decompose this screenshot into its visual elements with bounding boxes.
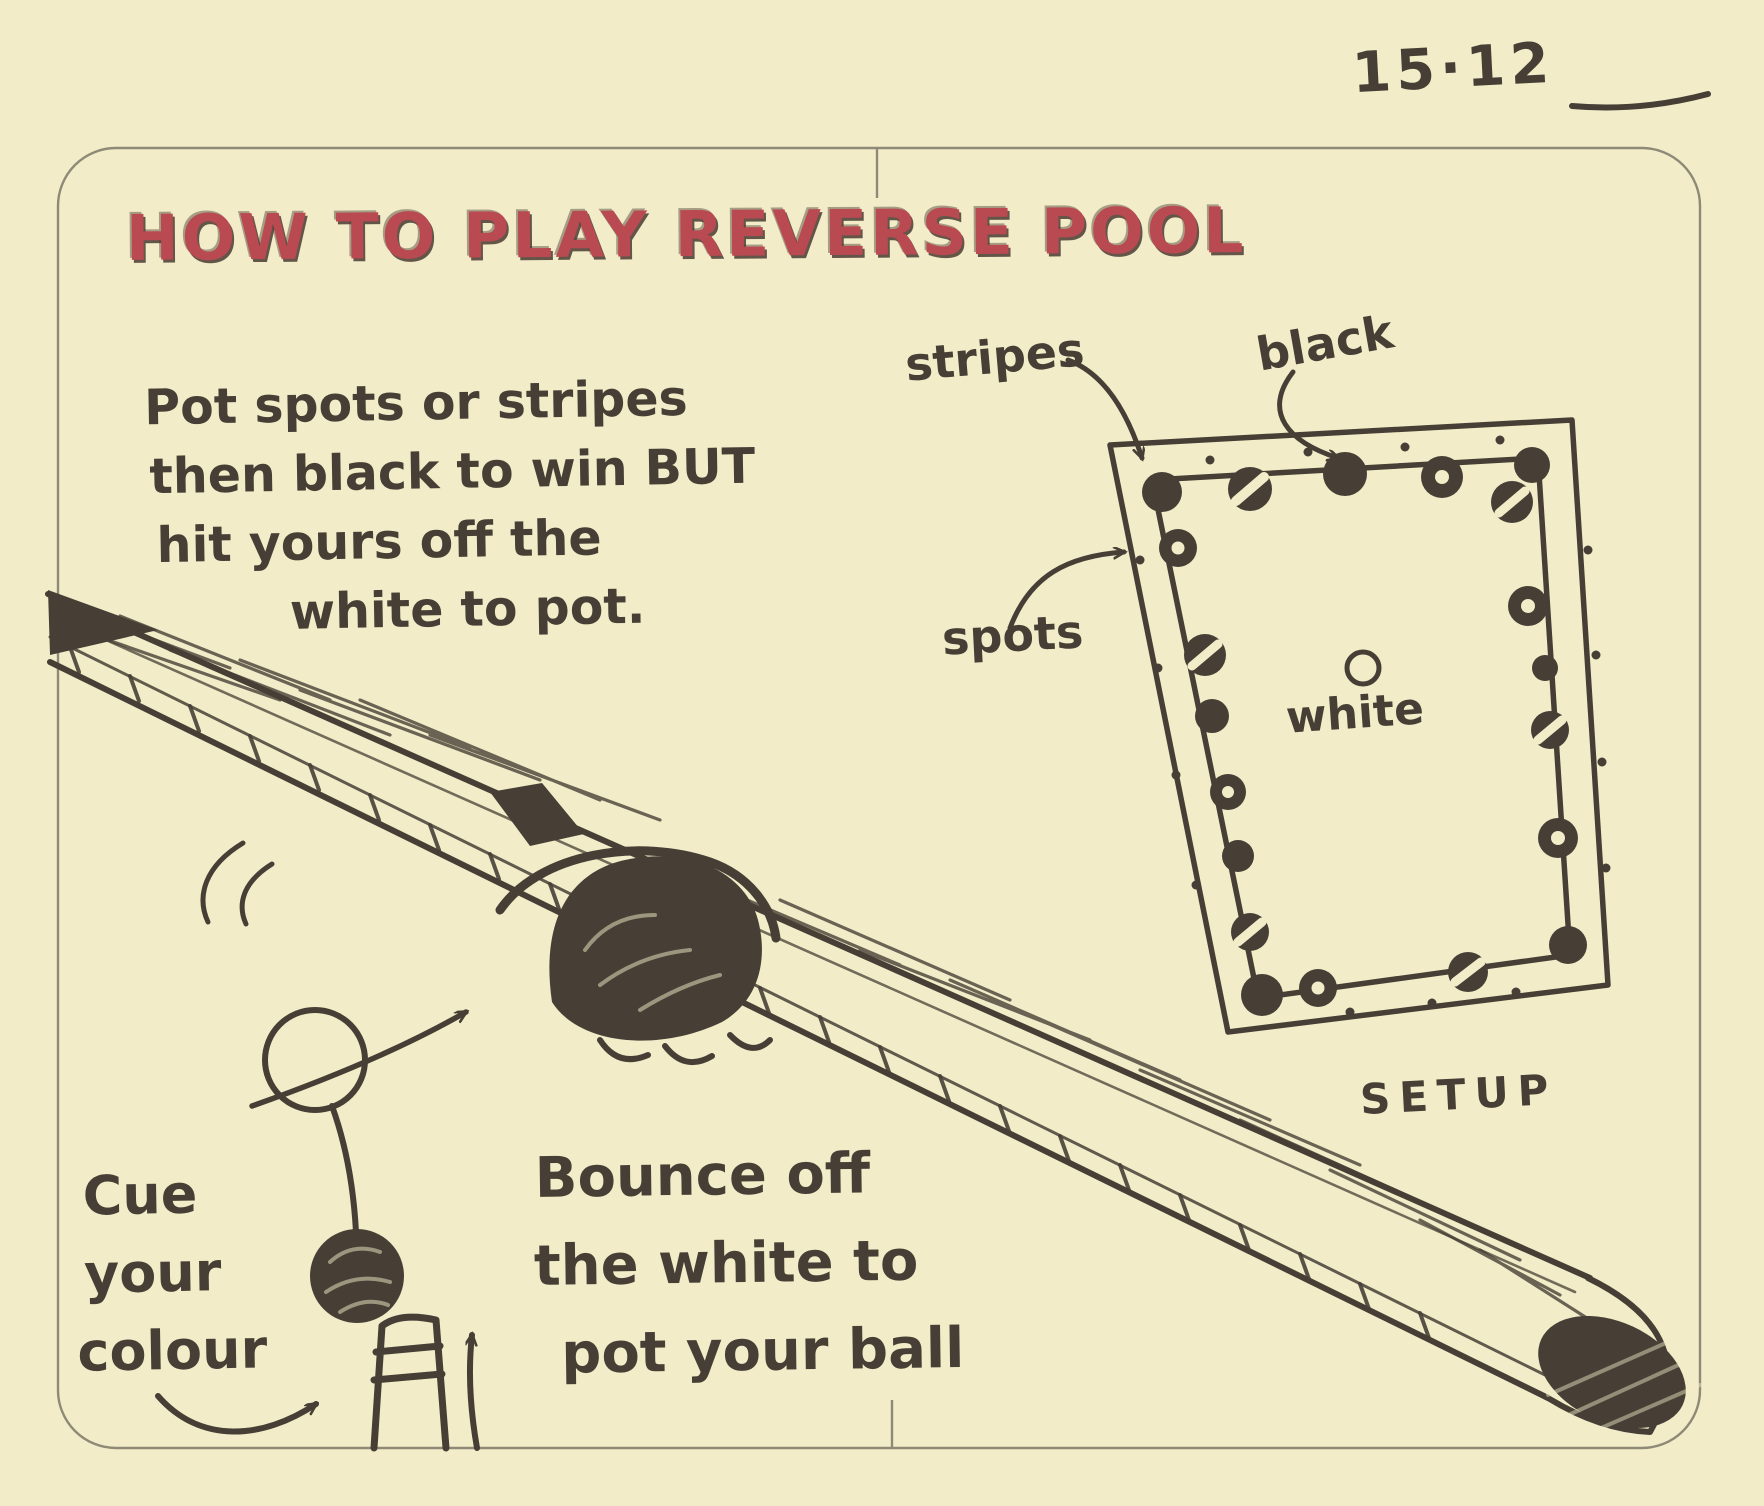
- bounce-line-1: Bounce off: [534, 1129, 962, 1223]
- rules-line-3: hit yours off the: [156, 501, 757, 580]
- cue-your-colour-label: Cue your colour: [82, 1154, 268, 1391]
- rules-line-2: then black to win BUT: [149, 432, 756, 512]
- setup-caption: SETUP: [1359, 1065, 1559, 1124]
- sketchnote-page: { "page": { "date": "15·12", "title": "H…: [0, 0, 1764, 1506]
- bounce-note: Bounce off the white to pot your ball: [534, 1129, 965, 1399]
- rules-line-1: Pot spots or stripes: [144, 363, 755, 443]
- colour-arrow: [158, 1396, 316, 1432]
- cue-joint-band: [490, 783, 584, 846]
- black-arrow: [1280, 372, 1338, 458]
- date-underline: [1572, 94, 1708, 108]
- bounce-line-2: the white to: [533, 1217, 963, 1311]
- cue-tip: [48, 590, 158, 655]
- bridge-hand: [500, 851, 776, 1062]
- page-title: HOW TO PLAY REVERSE POOL: [126, 194, 1247, 275]
- motion-arcs: [203, 843, 272, 924]
- cue-label-line-3: colour: [77, 1310, 268, 1391]
- pocket-sketch: [374, 1317, 446, 1448]
- rules-line-4: white to pot.: [289, 570, 758, 647]
- bounce-arrow: [252, 1012, 466, 1106]
- white-ball: [1347, 652, 1379, 684]
- date: 15·12: [1350, 31, 1555, 106]
- bounce-line-3: pot your ball: [561, 1305, 965, 1399]
- spots-label: spots: [941, 604, 1085, 665]
- black-ball: [1323, 452, 1367, 496]
- colour-ball: [310, 1229, 404, 1323]
- ball-connector-line: [332, 1106, 356, 1232]
- white-label: white: [1284, 683, 1425, 743]
- pot-up-arrow: [470, 1335, 477, 1448]
- cue-label-line-2: your: [83, 1232, 266, 1313]
- cue-label-line-1: Cue: [82, 1154, 265, 1235]
- rules-paragraph: Pot spots or stripes then black to win B…: [144, 363, 759, 650]
